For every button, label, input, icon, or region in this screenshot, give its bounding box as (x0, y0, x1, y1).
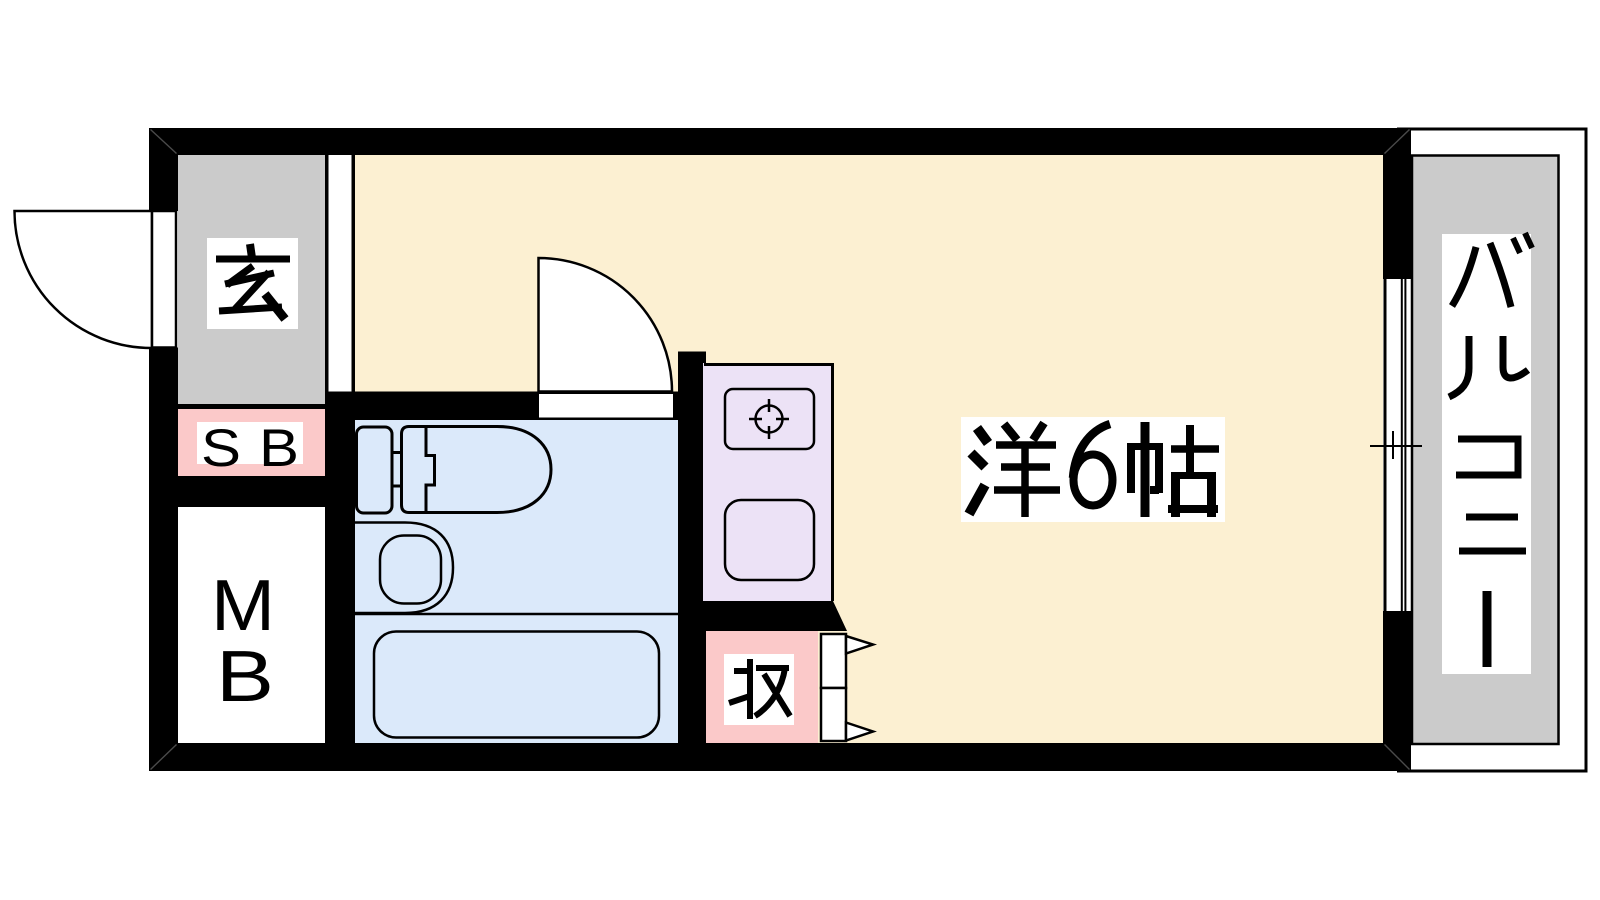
svg-text:M: M (211, 566, 275, 646)
svg-text:B: B (216, 637, 274, 717)
svg-text:S: S (201, 419, 241, 478)
svg-text:B: B (259, 419, 299, 478)
